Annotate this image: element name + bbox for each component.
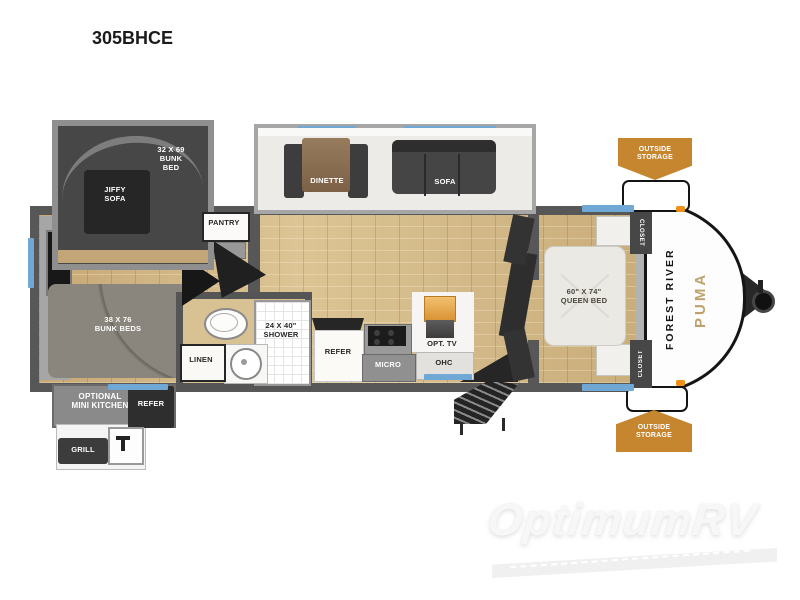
floorplan-title: 305BHCE (92, 28, 173, 49)
burner-icon (374, 330, 380, 336)
step-leg (460, 422, 463, 435)
floorplan-page: 305BHCE 38 X 76 BUNK BEDS 32 X 69 BUNK B… (0, 0, 800, 600)
storage-compartment-bottom (626, 386, 688, 412)
outside-storage-top-label: OUTSIDE STORAGE (618, 146, 692, 163)
sink-drain (241, 359, 247, 365)
window-rear-left (28, 238, 34, 288)
dinette-bench-left (284, 144, 304, 198)
closet-top: CLOSET (630, 212, 652, 254)
tv-console (426, 320, 454, 338)
sofa-back (392, 140, 496, 152)
shower-label: 24 X 40" SHOWER (256, 322, 306, 340)
slide-top-wall (258, 128, 532, 136)
refer-label: REFER (314, 348, 362, 357)
stovetop (368, 326, 406, 346)
closet-bottom-label: CLOSET (638, 350, 644, 377)
jiffy-sofa-label: JIFFY SOFA (86, 186, 144, 204)
clearance-light (676, 206, 685, 212)
model-text: PUMA (692, 238, 712, 362)
window-bedroom-top (582, 205, 634, 212)
micro-label: MICRO (362, 361, 414, 370)
bunk-slide-floor (58, 250, 208, 263)
exterior-refer-label: REFER (128, 400, 174, 409)
faucet-icon (121, 436, 125, 451)
queen-bed-label: 60" X 74" QUEEN BED (544, 288, 624, 306)
grill-label: GRILL (58, 446, 108, 455)
sofa-cushion-line (458, 154, 460, 196)
linen-label: LINEN (180, 356, 222, 365)
window-bottom-rear (108, 384, 168, 390)
closet-bottom: CLOSET (630, 340, 652, 388)
pantry-label: PANTRY (202, 219, 246, 228)
outside-storage-bottom-label: OUTSIDE STORAGE (616, 424, 692, 441)
exterior-sink (108, 427, 144, 465)
watermark-logo: OptimumRV (485, 494, 790, 546)
bunk-over-label: 32 X 69 BUNK BED (134, 146, 208, 173)
opt-tv-icon (424, 296, 456, 322)
nightstand-top (596, 216, 634, 246)
dinette-label: DINETTE (296, 177, 358, 186)
bunk-beds-label: 38 X 76 BUNK BEDS (48, 316, 188, 334)
window-bedroom-bottom (582, 384, 634, 391)
sofa-cushion-line (424, 154, 426, 196)
nightstand-bottom (596, 344, 634, 376)
dinette-bench-right (348, 144, 368, 198)
tongue-jack (758, 280, 763, 293)
window-entry (424, 374, 472, 380)
brand-text: FOREST RIVER (664, 224, 680, 374)
opt-tv-label: OPT. TV (410, 340, 474, 349)
sofa-label: SOFA (414, 178, 476, 187)
toilet-seat (210, 313, 238, 332)
step-leg (502, 418, 505, 431)
ohc-label: OHC (416, 359, 472, 368)
closet-top-label: CLOSET (638, 219, 644, 246)
clearance-light (676, 380, 685, 386)
tongue-jack-wheel (752, 290, 775, 313)
